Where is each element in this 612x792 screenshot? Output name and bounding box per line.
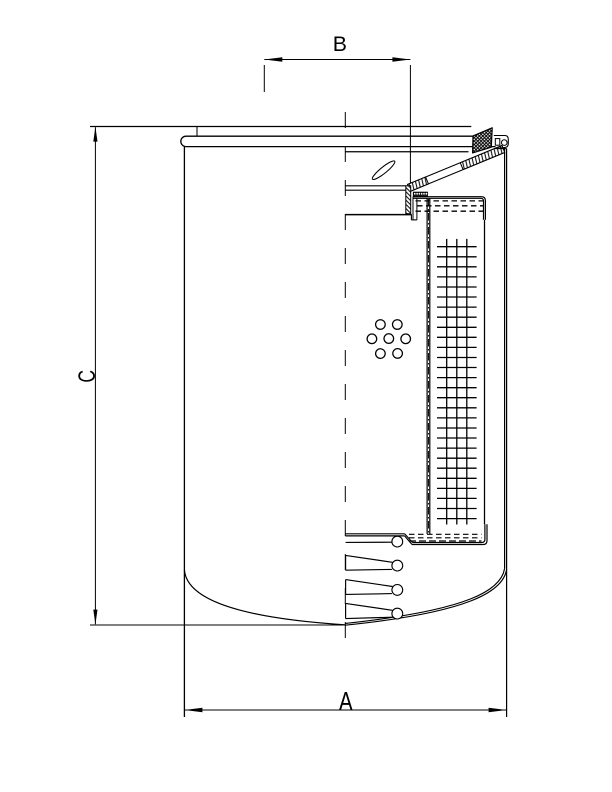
svg-text:B: B: [333, 32, 347, 56]
svg-text:C: C: [74, 370, 100, 383]
svg-text:A: A: [339, 687, 353, 716]
